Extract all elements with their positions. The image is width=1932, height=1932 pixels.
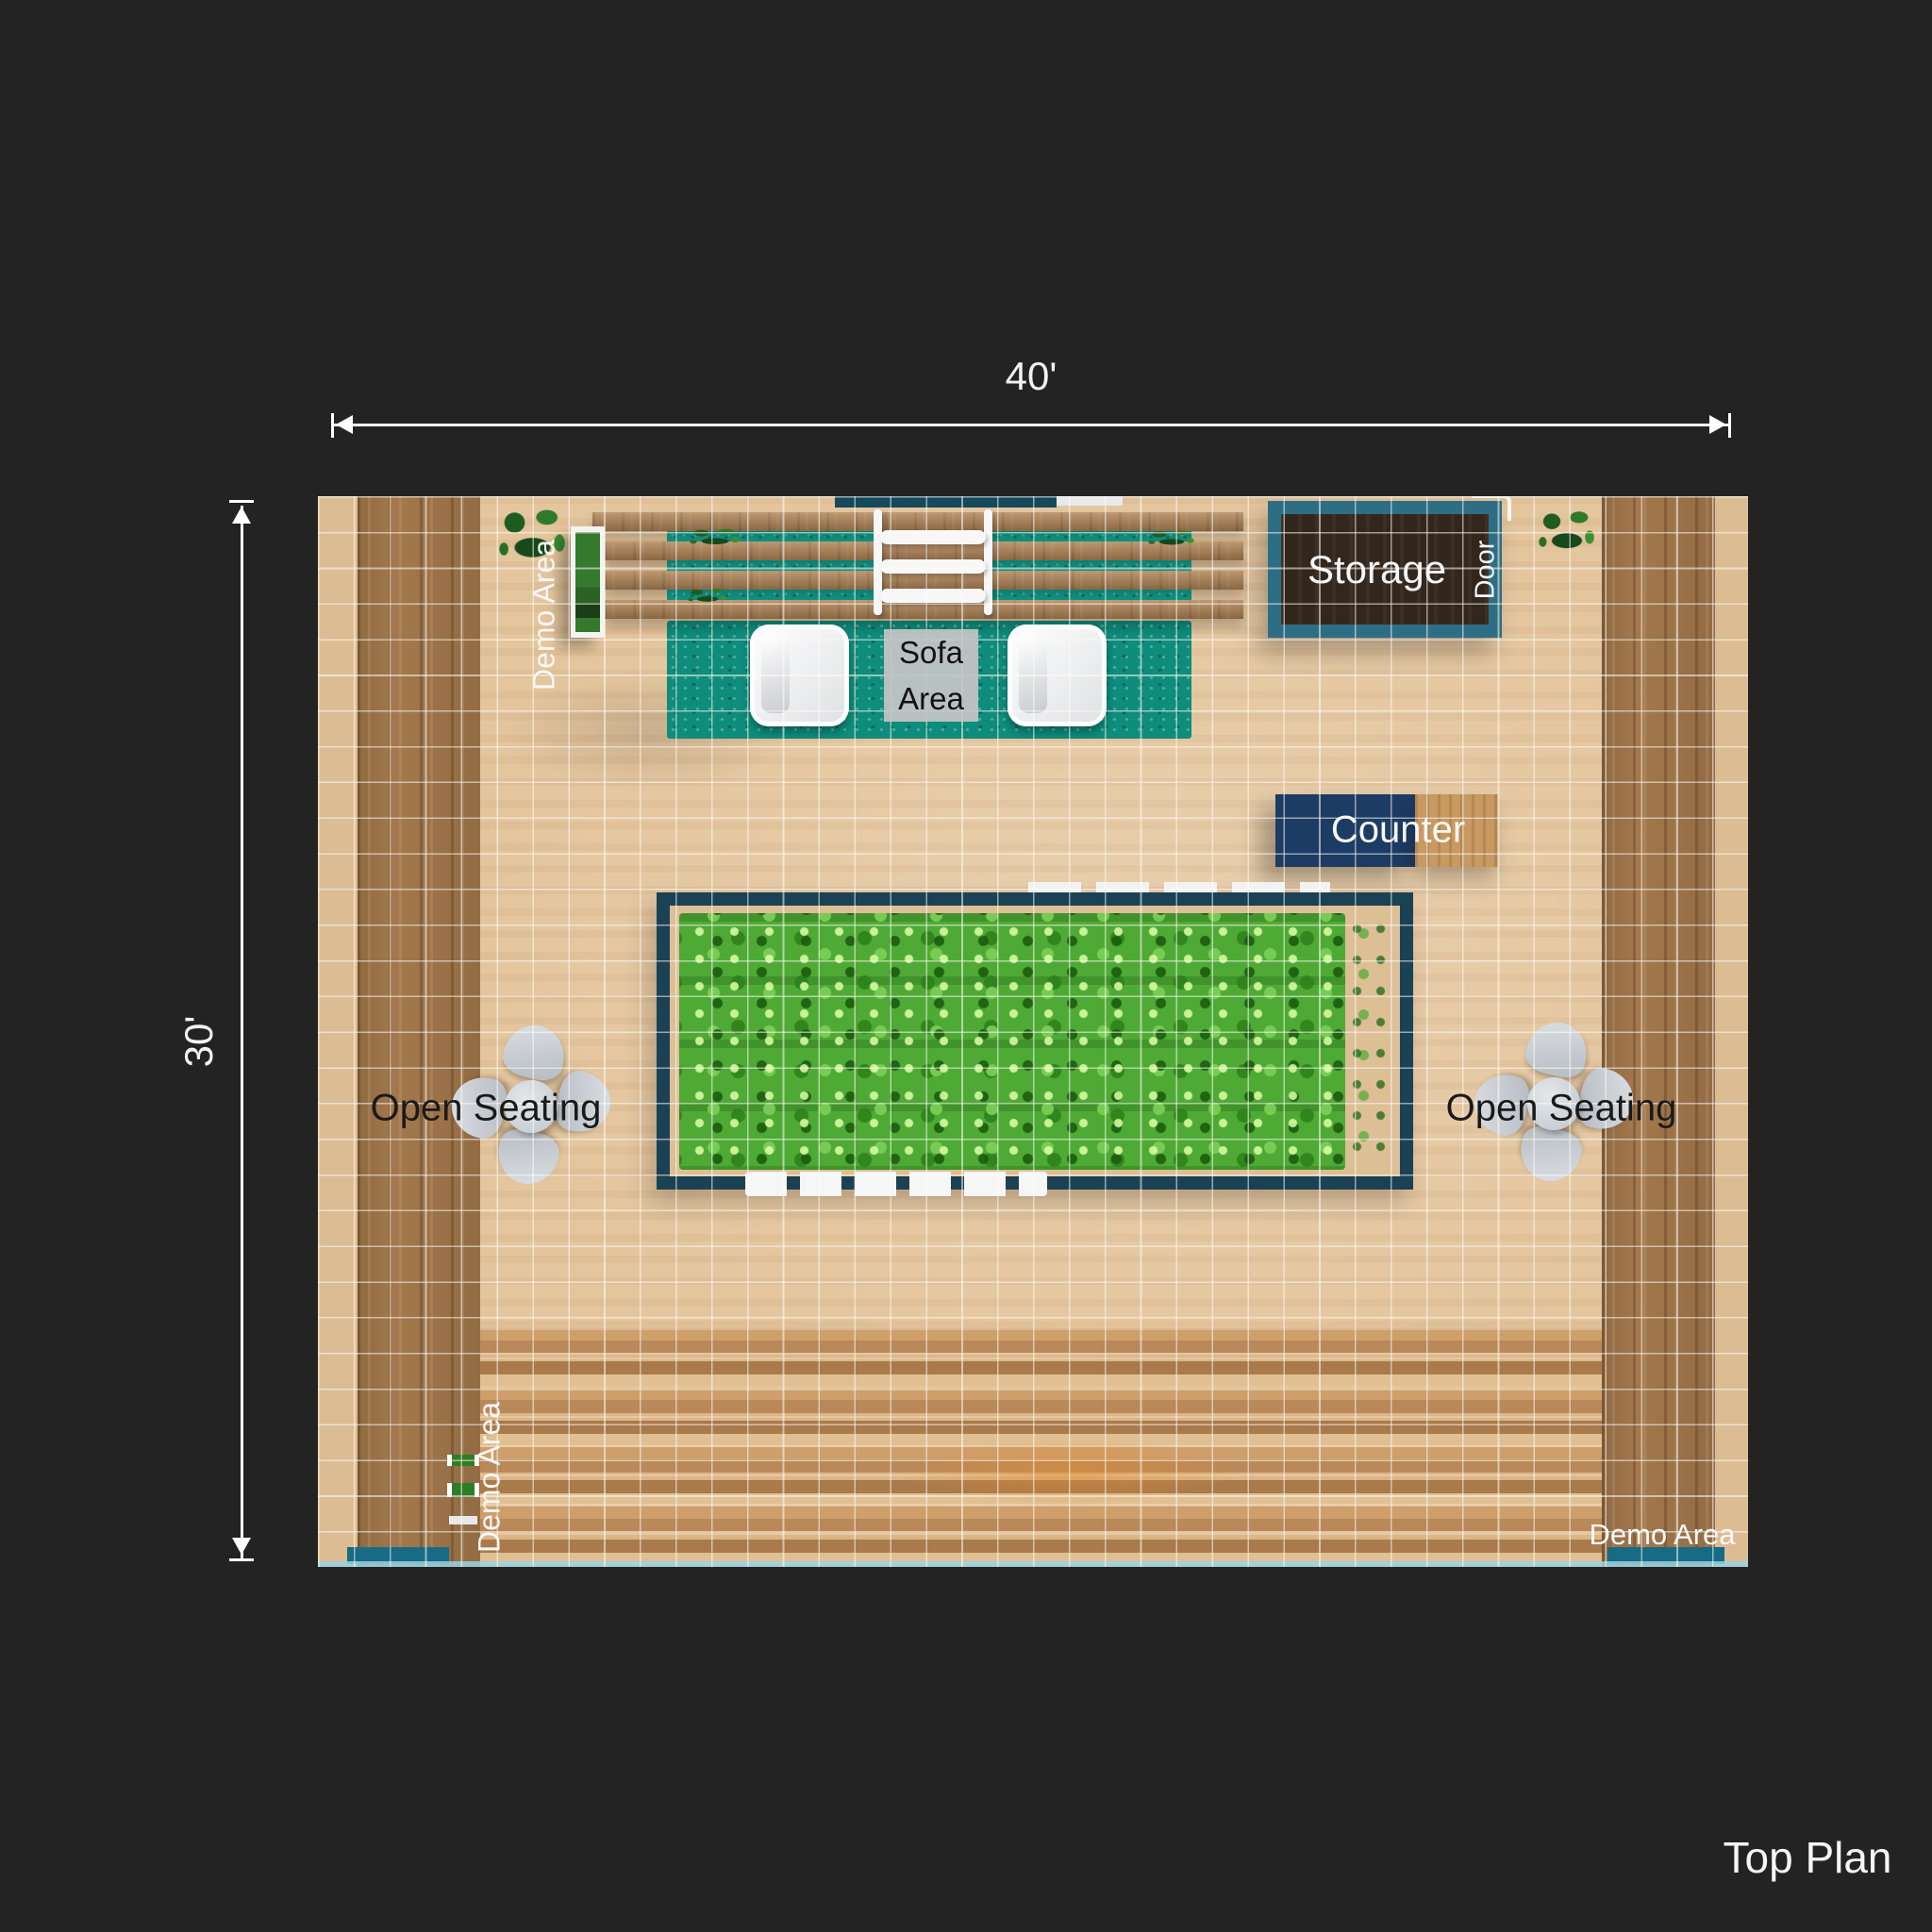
depth-dim-top-cap xyxy=(229,500,254,503)
width-dim-left-cap xyxy=(331,413,334,438)
bench-plant xyxy=(681,525,749,549)
door-label: Door xyxy=(1471,541,1502,600)
seating-chair xyxy=(499,1019,571,1085)
seating-chair xyxy=(1522,1016,1593,1082)
door-frame-mark xyxy=(1472,496,1511,521)
demo-area-label: Demo Area xyxy=(527,540,562,691)
page-title: Top Plan xyxy=(1723,1832,1891,1883)
demo-area-label: Demo Area xyxy=(1589,1518,1735,1552)
display-ladder-rung xyxy=(880,559,986,574)
seating-chair xyxy=(1514,1122,1586,1188)
counter-label: Counter xyxy=(1331,809,1465,852)
decking-highlight xyxy=(846,1430,1290,1515)
left-edge-strip xyxy=(318,496,358,1567)
depth-dim-down-arrow-icon xyxy=(232,1538,251,1555)
planter xyxy=(657,892,1413,1190)
display-ladder-rail xyxy=(984,509,992,615)
storage-cabinet: Storage xyxy=(1268,501,1502,638)
planter-foliage-fringe xyxy=(1345,913,1394,1170)
bench-plant xyxy=(1141,526,1203,549)
sofa xyxy=(750,625,849,726)
storage-label: Storage xyxy=(1281,547,1446,592)
depth-dimension-label: 30' xyxy=(176,1016,222,1068)
depth-dimension-line xyxy=(241,506,243,1558)
width-dim-right-arrow-icon xyxy=(1709,415,1726,434)
width-dim-right-cap xyxy=(1728,413,1731,438)
sofa xyxy=(1008,625,1107,726)
display-ladder-rung xyxy=(880,530,986,544)
width-dim-left-arrow-icon xyxy=(336,415,353,434)
planter-foliage xyxy=(679,913,1345,1170)
depth-dim-up-arrow-icon xyxy=(232,507,251,524)
bench-plant xyxy=(681,585,734,606)
top-wall-shelf xyxy=(835,496,1057,508)
bottom-edge-trim xyxy=(318,1561,1748,1567)
right-edge-strip xyxy=(1715,496,1748,1567)
top-plan-rendering: 40' 30' xyxy=(0,0,1932,1932)
open-seating-right-label: Open Seating xyxy=(1446,1088,1677,1130)
planter-top-bench xyxy=(1028,882,1330,892)
open-seating-left-label: Open Seating xyxy=(371,1088,602,1130)
depth-dim-bottom-cap xyxy=(229,1558,254,1561)
display-ladder-rung xyxy=(880,589,986,603)
top-wall-shelf-item xyxy=(1057,496,1123,506)
seating-chair xyxy=(491,1124,563,1191)
demo-display-stand xyxy=(571,526,605,638)
planter-bottom-bench xyxy=(745,1172,1047,1196)
storage-side-plant xyxy=(1529,501,1605,559)
sofa-area-label: Sofa Area xyxy=(884,629,978,722)
width-dimension-label: 40' xyxy=(1006,354,1058,399)
floor-plan: Demo Area Storage Door Sofa Area Counter xyxy=(318,496,1748,1567)
width-dimension-line xyxy=(333,424,1730,426)
demo-area-label: Demo Area xyxy=(473,1402,508,1553)
